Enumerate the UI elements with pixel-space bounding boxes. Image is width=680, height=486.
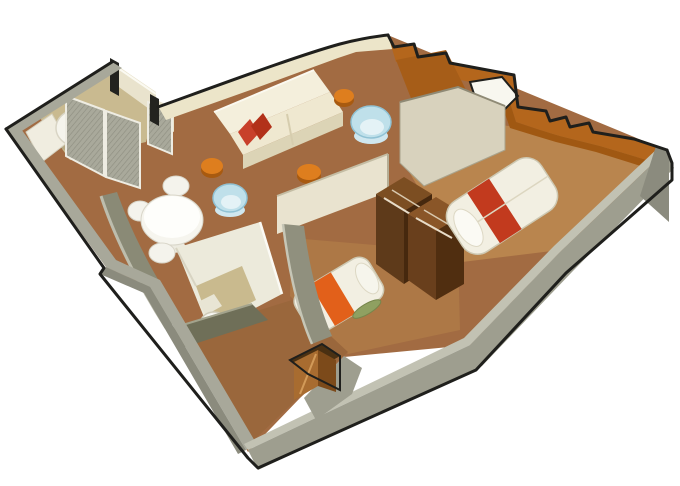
dining-chair-3 xyxy=(149,243,175,263)
dining-table-top xyxy=(144,196,200,238)
floor-plan-canvas xyxy=(0,0,680,486)
wall-post-2 xyxy=(150,94,159,126)
stateroom-floor-plan-render xyxy=(0,0,680,486)
dining-chair-1 xyxy=(163,176,189,196)
side-table-3 xyxy=(334,89,354,103)
armchair-1-seat xyxy=(360,119,384,135)
mesh-door-2 xyxy=(106,111,140,188)
side-table-2 xyxy=(297,164,321,180)
side-table-1 xyxy=(201,158,223,174)
armchair-2-seat xyxy=(221,195,241,209)
